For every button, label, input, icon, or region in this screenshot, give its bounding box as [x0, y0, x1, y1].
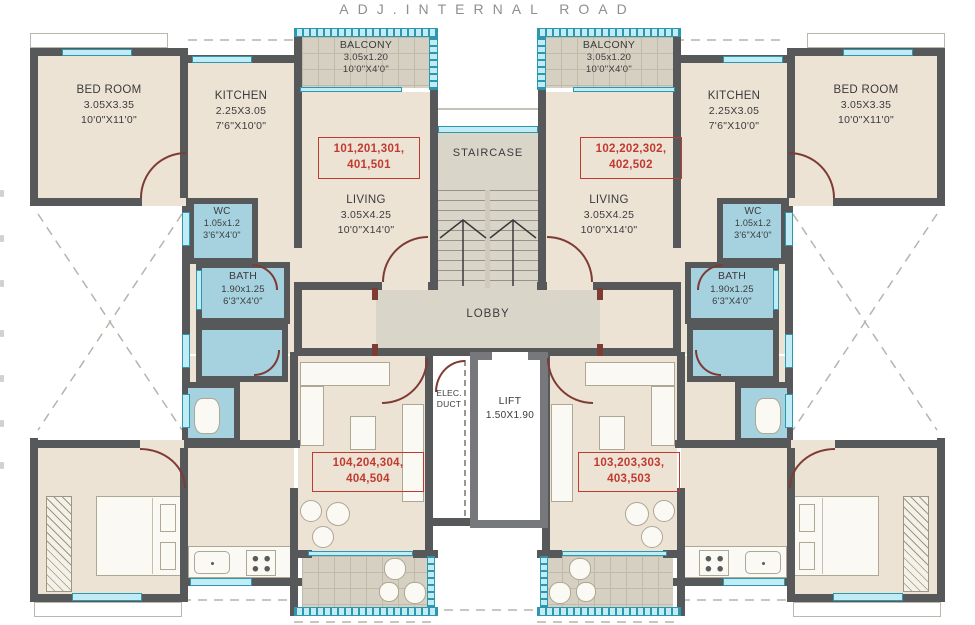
- edge-text-fragment: [0, 190, 4, 197]
- room-fill-kitchen-tl: [188, 63, 294, 206]
- pillow: [799, 504, 815, 532]
- window: [192, 56, 252, 63]
- room-dim-ft: 6'3"X4'0": [200, 296, 286, 308]
- room-dim-ft: 10'0"X14'0": [302, 223, 430, 238]
- room-name: BATH: [689, 270, 775, 284]
- balcony-chair: [404, 582, 426, 604]
- room-dim-m: 3.05x1.20: [302, 52, 430, 64]
- window: [785, 212, 793, 246]
- bed-fold-line: [822, 498, 823, 574]
- toilet: [194, 398, 220, 434]
- unit-label-102: 102,202,302, 402,502: [580, 137, 682, 179]
- room-name: BALCONY: [545, 39, 673, 52]
- room-dim-ft: 10'0"X4'0": [545, 64, 673, 76]
- balcony-chair: [379, 582, 399, 602]
- door-jamb: [372, 288, 378, 300]
- room-label-bath-left: BATH 1.90x1.25 6'3"X4'0": [200, 270, 286, 308]
- dining-chair: [641, 526, 663, 548]
- balcony-railing: [429, 37, 438, 90]
- room-name: LIFT: [478, 394, 542, 409]
- wardrobe: [46, 496, 72, 592]
- chajja-edge-staircase: [433, 108, 547, 110]
- unit-numbers-line2: 404,504: [313, 472, 423, 488]
- dining-chair: [625, 502, 649, 526]
- sliding-window: [573, 87, 675, 92]
- sofa-back: [585, 362, 675, 386]
- window: [190, 578, 252, 586]
- staircase-treads-left-flight: [438, 190, 486, 288]
- edge-text-fragment: [0, 462, 4, 469]
- road-label: ADJ.INTERNAL ROAD: [0, 1, 975, 17]
- balcony-chair: [549, 582, 571, 604]
- window: [723, 578, 785, 586]
- room-dim-ft: 3'6"X4'0": [190, 230, 254, 242]
- balcony-railing: [537, 607, 681, 616]
- room-dim-m: 3.05x1.20: [545, 52, 673, 64]
- room-label-balcony-tl: BALCONY 3.05x1.20 10'0"X4'0": [302, 39, 430, 76]
- window: [843, 49, 913, 56]
- window: [785, 394, 793, 428]
- room-dim-ft: 3'6"X4'0": [721, 230, 785, 242]
- room-dim-ft: 10'0"X11'0": [44, 113, 174, 128]
- room-name: BATH: [200, 270, 286, 284]
- wall-segment: [294, 290, 302, 356]
- window: [62, 49, 132, 56]
- lift-door-opening: [492, 352, 528, 360]
- room-name-line1: ELEC.: [431, 388, 467, 399]
- wall-segment: [937, 438, 945, 602]
- wardrobe: [903, 496, 929, 592]
- chajja-bottom-left: [34, 602, 182, 617]
- staircase-treads-right-flight: [490, 190, 538, 288]
- room-name-line2: DUCT: [431, 399, 467, 410]
- room-fill-foyer-102: [599, 290, 673, 348]
- unit-numbers-line1: 104,204,304,: [313, 456, 423, 472]
- room-dim-ft: 10'0"X14'0": [545, 223, 673, 238]
- room-dim-ft: 7'6"X10'0": [188, 119, 294, 134]
- door-opening: [789, 198, 833, 206]
- dining-chair: [300, 500, 322, 522]
- room-label-bedroom-tr: BED ROOM 3.05X3.35 10'0"X11'0": [801, 82, 931, 127]
- balcony-railing: [427, 556, 435, 608]
- cabinet: [551, 404, 573, 502]
- floor-plan: BED ROOM 3.05X3.35 10'0"X11'0" KITCHEN 2…: [0, 0, 975, 625]
- dining-chair: [653, 500, 675, 522]
- balcony-railing: [294, 28, 438, 37]
- sliding-window: [562, 551, 667, 556]
- dining-chair: [326, 502, 350, 526]
- wall-segment: [677, 352, 685, 444]
- bed-fold-line: [152, 498, 153, 574]
- room-name: KITCHEN: [188, 88, 294, 104]
- door-jamb: [597, 344, 603, 356]
- balcony-railing: [537, 28, 681, 37]
- room-name: KITCHEN: [681, 88, 787, 104]
- door-opening: [140, 440, 184, 448]
- room-name: BED ROOM: [801, 82, 931, 98]
- room-name: LIVING: [545, 192, 673, 208]
- room-dim-m: 3.05X4.25: [545, 208, 673, 223]
- balcony-chair: [576, 582, 596, 602]
- room-label-bedroom-tl: BED ROOM 3.05X3.35 10'0"X11'0": [44, 82, 174, 127]
- door-opening: [382, 282, 428, 290]
- door-opening: [547, 282, 593, 290]
- unit-numbers-line1: 103,203,303,: [579, 456, 679, 472]
- room-dim-m: 3.05X4.25: [302, 208, 430, 223]
- balcony-railing: [540, 556, 548, 608]
- edge-text-fragment: [0, 420, 4, 427]
- door-opening: [294, 248, 302, 282]
- room-name: BALCONY: [302, 39, 430, 52]
- unit-numbers-line2: 402,502: [581, 158, 681, 174]
- sink: [745, 551, 781, 574]
- pillow: [799, 542, 815, 570]
- edge-text-fragment: [0, 235, 4, 242]
- wall-segment: [30, 48, 38, 206]
- room-dim-m: 2.25X3.05: [188, 104, 294, 119]
- room-dim-m: 3.05X3.35: [801, 98, 931, 113]
- room-dim-m: 3.05X3.35: [44, 98, 174, 113]
- door-jamb: [597, 288, 603, 300]
- room-fill-foyer-101: [302, 290, 376, 348]
- room-label-balcony-tr: BALCONY 3.05x1.20 10'0"X4'0": [545, 39, 673, 76]
- sliding-window: [300, 87, 402, 92]
- room-name: LIVING: [302, 192, 430, 208]
- window: [182, 212, 190, 246]
- room-dim-m: 1.50X1.90: [478, 409, 542, 423]
- sofa-arm: [651, 386, 675, 446]
- window: [182, 394, 190, 428]
- room-fill-kitchen-tr: [681, 63, 787, 206]
- stove: [699, 550, 729, 576]
- room-label-kitchen-tl: KITCHEN 2.25X3.05 7'6"X10'0": [188, 88, 294, 133]
- wall-segment: [290, 352, 298, 444]
- room-dim-m: 1.05x1.2: [190, 218, 254, 230]
- balcony-railing: [294, 607, 438, 616]
- chajja-bottom-right: [793, 602, 941, 617]
- lift-shaft: [470, 352, 548, 528]
- room-dim-m: 1.90x1.25: [689, 284, 775, 296]
- room-dim-ft: 6'3"X4'0": [689, 296, 775, 308]
- coffee-table: [350, 416, 376, 450]
- room-dim-ft: 10'0"X11'0": [801, 113, 931, 128]
- room-dim-ft: 10'0"X4'0": [302, 64, 430, 76]
- room-dim-m: 1.90x1.25: [200, 284, 286, 296]
- edge-text-fragment: [0, 375, 4, 382]
- room-label-lift: LIFT 1.50X1.90: [478, 394, 542, 423]
- toilet: [755, 398, 781, 434]
- dining-chair: [312, 526, 334, 548]
- room-name: LOBBY: [376, 306, 600, 322]
- pillow: [160, 504, 176, 532]
- unit-label-103: 103,203,303, 403,503: [578, 452, 680, 492]
- door-opening: [142, 198, 186, 206]
- unit-numbers-line2: 401,501: [319, 158, 419, 174]
- wall-segment: [425, 518, 472, 526]
- wall-segment: [30, 438, 38, 602]
- unit-numbers-line1: 101,201,301,: [319, 142, 419, 158]
- room-label-elec-duct: ELEC. DUCT: [431, 388, 467, 410]
- room-name: WC: [190, 205, 254, 218]
- window: [182, 334, 190, 368]
- pillow: [160, 542, 176, 570]
- room-name: STAIRCASE: [438, 146, 538, 161]
- sofa-back: [300, 362, 390, 386]
- wall-segment: [937, 48, 945, 206]
- room-dim-m: 1.05x1.2: [721, 218, 785, 230]
- unit-numbers-line1: 102,202,302,: [581, 142, 681, 158]
- room-dim-ft: 7'6"X10'0": [681, 119, 787, 134]
- chajja-top-left: [30, 33, 168, 48]
- coffee-table: [599, 416, 625, 450]
- room-name: BED ROOM: [44, 82, 174, 98]
- room-name: WC: [721, 205, 785, 218]
- window: [723, 56, 783, 63]
- sink: [194, 551, 230, 574]
- room-label-kitchen-tr: KITCHEN 2.25X3.05 7'6"X10'0": [681, 88, 787, 133]
- unit-numbers-line2: 403,503: [579, 472, 679, 488]
- door-opening: [673, 248, 681, 282]
- sliding-window: [308, 551, 413, 556]
- room-label-living-tl: LIVING 3.05X4.25 10'0"X14'0": [302, 192, 430, 237]
- door-opening: [791, 440, 835, 448]
- stove: [246, 550, 276, 576]
- room-label-wc-left: WC 1.05x1.2 3'6"X4'0": [190, 205, 254, 241]
- sofa-arm: [300, 386, 324, 446]
- edge-text-fragment: [0, 330, 4, 337]
- room-label-wc-right: WC 1.05x1.2 3'6"X4'0": [721, 205, 785, 241]
- balcony-chair: [569, 558, 591, 580]
- window: [438, 126, 538, 133]
- balcony-chair: [384, 558, 406, 580]
- chajja-top-right: [807, 33, 945, 48]
- room-dim-m: 2.25X3.05: [681, 104, 787, 119]
- window: [72, 593, 142, 601]
- window: [833, 593, 903, 601]
- window: [785, 334, 793, 368]
- unit-label-101: 101,201,301, 401,501: [318, 137, 420, 179]
- room-label-bath-right: BATH 1.90x1.25 6'3"X4'0": [689, 270, 775, 308]
- room-label-lobby: LOBBY: [376, 306, 600, 322]
- edge-text-fragment: [0, 280, 4, 287]
- room-label-staircase: STAIRCASE: [438, 146, 538, 161]
- door-jamb: [372, 344, 378, 356]
- wall-segment: [673, 290, 681, 356]
- unit-label-104: 104,204,304, 404,504: [312, 452, 424, 492]
- room-label-living-tr: LIVING 3.05X4.25 10'0"X14'0": [545, 192, 673, 237]
